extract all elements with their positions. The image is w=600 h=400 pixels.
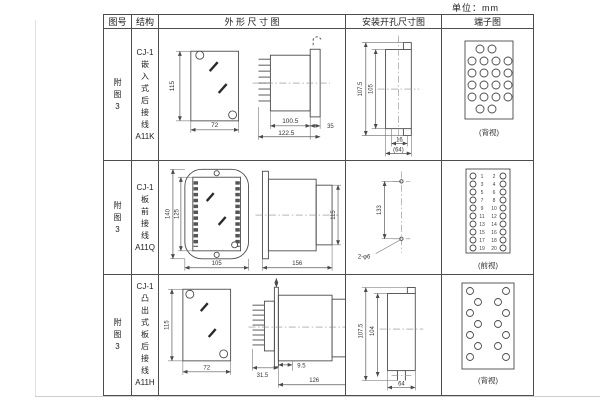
terminal-number: 19: [479, 246, 485, 252]
terminal-number: 8: [493, 198, 496, 204]
row3-structure: CJ-1 凸 出 式 板 后 接 线 A11H: [132, 275, 159, 395]
row3-fig-no: 附 图 3: [104, 275, 132, 395]
row2-mounting-cell: 133 2-φ6: [346, 161, 442, 275]
terminal-block-rear: [462, 283, 514, 369]
dim-label: 16: [396, 137, 403, 143]
dim-label: 72: [211, 121, 219, 128]
terminal-number: 12: [491, 214, 497, 220]
dim-label: 105: [212, 261, 223, 267]
dim-label: 35: [327, 123, 334, 129]
header-fig-no: 图号: [104, 15, 132, 29]
row3-outline-drawing: 115 72: [159, 275, 345, 395]
dimension-table: 图号 结构 外 形 尺 寸 图 安装开孔尺寸图 端子图 附 图 3 CJ-1 嵌…: [103, 14, 534, 396]
page-edge-bottom: [35, 396, 600, 397]
dim-label: 105: [369, 83, 375, 94]
row1-mounting-drawing: 107.5 105 16 (64): [346, 29, 441, 161]
row2-terminal-diagram: 1 2 3 4 5 6 7 8 9 10 11 12 13 14 15 16 1: [442, 161, 533, 275]
terminal-number: 13: [479, 222, 485, 228]
header-mounting: 安装开孔尺寸图: [346, 15, 442, 29]
terminal-number: 15: [479, 230, 485, 236]
row2-outline-cell: 140 125 105 156: [159, 161, 346, 275]
dim-label: 9.5: [297, 363, 306, 369]
terminal-number: 9: [481, 206, 484, 212]
dim-label: 104: [370, 325, 376, 336]
dim-label: 126: [309, 378, 320, 384]
row1-outline-drawing: 115 72 100.5: [159, 29, 345, 161]
terminal-number: 14: [491, 222, 497, 228]
row1-structure: CJ-1 嵌 入 式 后 接 线 A11K: [132, 29, 159, 161]
dim-label: 31.5: [257, 373, 269, 379]
terminal-number: 3: [481, 182, 484, 188]
terminal-block-front: 1 2 3 4 5 6 7 8 9 10 11 12 13 14 15 16 1: [466, 169, 510, 253]
side-view: 100.5 35 122.5: [252, 36, 334, 139]
row3-mounting-drawing: 107.5 104 64: [346, 275, 441, 395]
dim-label: 107.5: [358, 80, 364, 96]
row3-outline-cell: 115 72: [159, 275, 346, 395]
row3-mounting-cell: 107.5 104 64: [346, 275, 442, 395]
terminal-number: 1: [481, 174, 484, 180]
dim-label: 156: [292, 261, 303, 267]
row2-outline-drawing: 140 125 105 156: [159, 161, 345, 275]
row1-terminal-cell: (背视): [442, 29, 533, 161]
front-view: 115 72: [164, 289, 230, 375]
dim-label: 125: [174, 208, 180, 219]
dim-label: 115: [331, 209, 337, 219]
dim-label: 115: [169, 80, 176, 91]
unit-label: 单位：mm: [452, 1, 499, 14]
row1-fig-no: 附 图 3: [104, 29, 132, 161]
row2-terminal-cell: 1 2 3 4 5 6 7 8 9 10 11 12 13 14 15 16 1: [442, 161, 533, 275]
view-caption: (前视): [478, 260, 498, 270]
cutout-view: 133 2-φ6: [358, 171, 410, 260]
front-view: 115 72: [169, 51, 239, 133]
terminal-number: 20: [491, 246, 497, 252]
terminal-number: 2: [493, 174, 496, 180]
dim-label: 72: [203, 365, 210, 371]
page-edge-left: [35, 20, 36, 397]
row3-terminal-diagram: (背视): [442, 275, 533, 395]
terminal-number: 18: [491, 238, 497, 244]
dim-label: 115: [164, 320, 170, 330]
view-caption: (背视): [479, 127, 499, 137]
view-caption: (背视): [478, 375, 498, 385]
header-outline: 外 形 尺 寸 图: [159, 15, 346, 29]
row2-mounting-drawing: 133 2-φ6: [346, 161, 441, 275]
terminal-number: 16: [491, 230, 497, 236]
terminal-number: 17: [479, 238, 485, 244]
cutout-view: 107.5 104 64: [358, 288, 423, 391]
terminal-number: 5: [481, 190, 484, 196]
terminal-number: 10: [491, 206, 497, 212]
dim-label: 140: [165, 208, 171, 219]
terminal-number: 7: [481, 198, 484, 204]
hole-label: 2-φ6: [358, 254, 371, 260]
row2-structure: CJ-1 板 前 接 线 A11Q: [132, 161, 159, 275]
dim-label: 107.5: [358, 323, 364, 339]
row3-terminal-cell: (背视): [442, 275, 533, 395]
header-structure: 结构: [132, 15, 159, 29]
dim-label: (64): [393, 147, 404, 153]
dim-label: 122.5: [278, 129, 295, 136]
terminal-block-rear: [465, 41, 513, 119]
dim-label: 64: [398, 381, 405, 387]
row1-mounting-cell: 107.5 105 16 (64): [346, 29, 442, 161]
row1-outline-cell: 115 72 100.5: [159, 29, 346, 161]
dim-label: 100.5: [282, 117, 299, 124]
terminal-number: 4: [493, 182, 496, 188]
row2-fig-no: 附 图 3: [104, 161, 132, 275]
row1-terminal-diagram: (背视): [442, 29, 533, 161]
terminal-number: 6: [493, 190, 496, 196]
side-view: 156 115: [255, 171, 341, 270]
front-view: 140 125 105: [165, 169, 248, 270]
drawing-sheet: 单位：mm 图号 结构 外 形 尺 寸 图 安装开孔尺寸图 端子图 附 图 3 …: [0, 0, 600, 400]
terminal-number: 11: [479, 214, 484, 220]
side-view: 31.5 9.5 126: [249, 278, 345, 387]
header-terminal: 端子图: [442, 15, 533, 29]
dim-label: 133: [377, 204, 383, 215]
cutout-view: 107.5 105 16 (64): [358, 35, 419, 156]
